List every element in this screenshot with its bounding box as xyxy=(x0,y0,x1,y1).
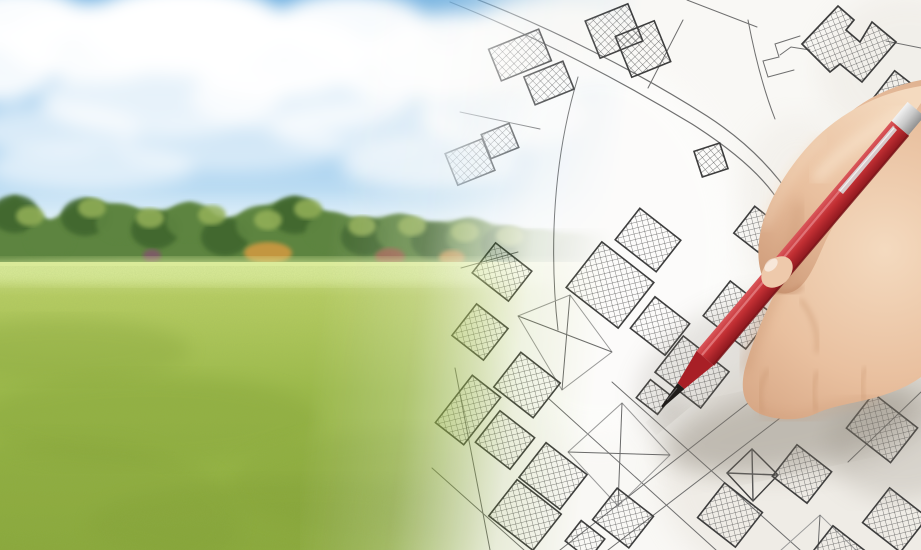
hand-layer xyxy=(0,0,921,550)
hand-holding-red-pencil xyxy=(0,0,921,550)
field-to-city-map-composite xyxy=(0,0,921,550)
